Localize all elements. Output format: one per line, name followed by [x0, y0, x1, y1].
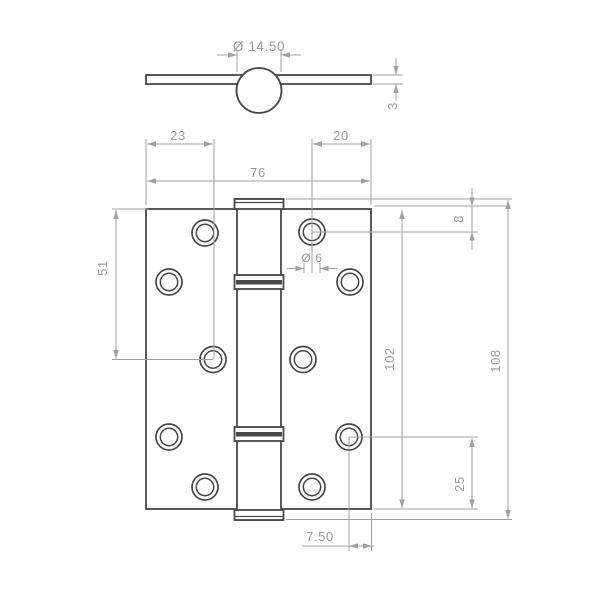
screw-hole	[337, 269, 363, 295]
dim-knuckle-diameter: Ø 14.50	[217, 39, 301, 72]
screw-hole	[299, 474, 325, 500]
dim-label-right-hole-inset: 20	[333, 128, 349, 143]
arrow-right-icon	[204, 141, 213, 146]
dim-label-corner-hole-inset: 7.50	[306, 529, 334, 544]
dim-leaf-thickness: 3	[373, 58, 403, 110]
dim-label-screw-hole-diameter: Ø 6	[301, 251, 322, 265]
dim-label-knuckle-diameter: Ø 14.50	[233, 39, 285, 54]
arrow-right-icon	[361, 141, 370, 146]
arrow-left-icon	[147, 141, 156, 146]
screw-hole	[290, 347, 316, 373]
arrow-left-icon	[147, 178, 156, 183]
dim-label-leaf-height: 102	[382, 347, 397, 371]
dim-leaf-height: 102	[374, 210, 478, 509]
dim-label-top-hole-inset: 8	[451, 215, 466, 223]
dim-label-bottom-hole-inset: 25	[452, 476, 467, 492]
arrow-right-icon	[363, 543, 372, 548]
dim-label-leaf-width: 76	[250, 165, 266, 180]
arrow-down-icon	[393, 66, 398, 75]
arrow-down-icon	[113, 350, 118, 359]
screw-hole	[156, 424, 182, 450]
screw-hole	[156, 269, 182, 295]
top-view: Ø 14.50 3	[146, 39, 403, 113]
arrow-up-icon	[393, 84, 398, 93]
barrel-top-tab	[235, 199, 284, 209]
barrel-body	[237, 199, 281, 520]
arrow-left-icon	[349, 543, 358, 548]
screw-hole	[192, 474, 218, 500]
barrel-bottom-tab	[235, 510, 284, 520]
knuckle-barrel-circle	[237, 68, 282, 113]
front-view: 23 20 76 51	[95, 128, 512, 551]
arrow-right-icon	[361, 178, 370, 183]
arrow-up-icon	[113, 210, 118, 219]
arrow-down-icon	[505, 510, 510, 519]
dim-label-left-hole-inset: 23	[170, 128, 186, 143]
arrow-up-icon	[469, 438, 474, 447]
arrow-left-icon	[313, 141, 322, 146]
arrow-down-icon	[399, 500, 404, 509]
arrow-up-icon	[399, 210, 404, 219]
arrow-down-icon	[469, 500, 474, 509]
drawing-canvas: Ø 14.50 3	[0, 0, 600, 600]
dim-label-overall-height: 108	[488, 349, 503, 373]
dim-label-leaf-thickness: 3	[385, 102, 400, 110]
dim-label-left-hole-span: 51	[95, 260, 110, 276]
arrow-up-icon	[469, 232, 474, 241]
dim-leaf-width: 76	[146, 139, 371, 205]
arrow-up-icon	[505, 200, 510, 209]
hinge-barrel	[235, 199, 284, 520]
hinge-engineering-drawing: Ø 14.50 3	[0, 0, 600, 600]
